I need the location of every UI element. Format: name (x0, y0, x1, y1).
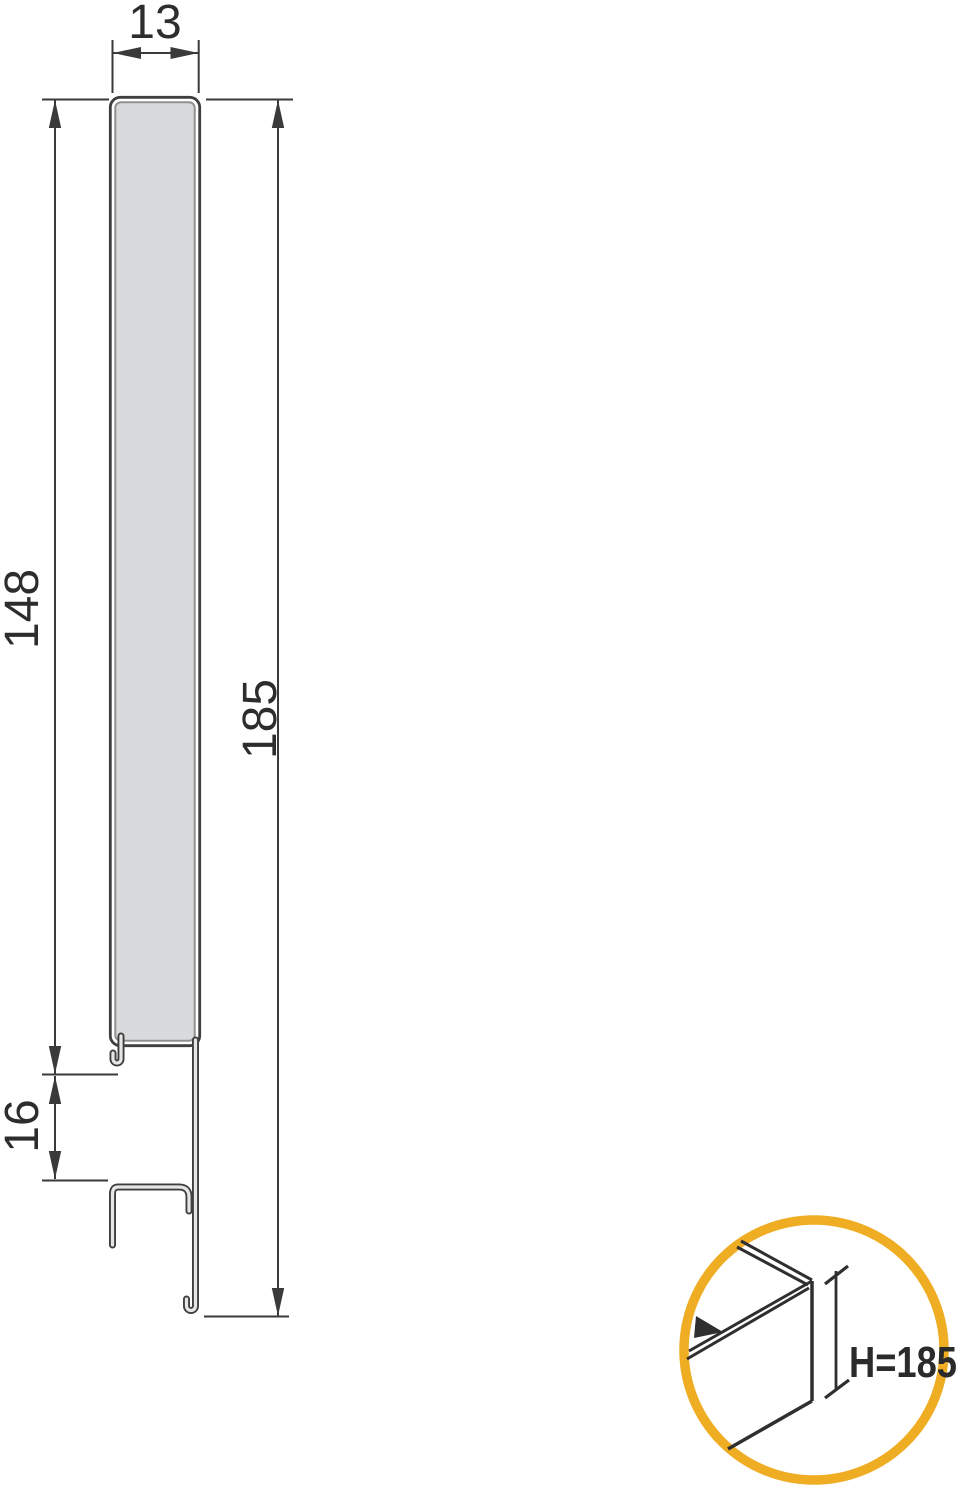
dim-185-arrow-top (272, 100, 284, 128)
inset-height-label: H=185 (849, 1338, 957, 1387)
inset-detail: H=185 (684, 1220, 957, 1480)
dimension-left-height: 148 (0, 100, 118, 1075)
dimension-top-width: 13 (113, 0, 199, 93)
bottom-flange (113, 1187, 190, 1245)
dim-148-lines (42, 100, 118, 1075)
technical-drawing: 13 148 16 185 H=185 (0, 0, 966, 1500)
dim-16-arrow-bottom (49, 1151, 61, 1179)
dim-148-arrow-bottom (49, 1046, 61, 1074)
drawing-canvas: 13 148 16 185 H=185 (0, 0, 966, 1500)
dimension-left-lower: 16 (0, 1076, 108, 1181)
dim-13-label: 13 (128, 0, 181, 49)
dim-148-arrow-top (49, 100, 61, 128)
lower-inner-wall (187, 1040, 196, 1311)
dim-148-label: 148 (0, 569, 49, 649)
dim-16-arrow-top (49, 1076, 61, 1104)
panel-profile (110, 97, 199, 1310)
dimension-total-height: 185 (204, 100, 293, 1317)
dim-185-arrow-bottom (272, 1288, 284, 1316)
dim-185-label: 185 (234, 679, 287, 759)
panel-inner-fill (115, 102, 194, 1040)
dim-16-label: 16 (0, 1099, 49, 1152)
